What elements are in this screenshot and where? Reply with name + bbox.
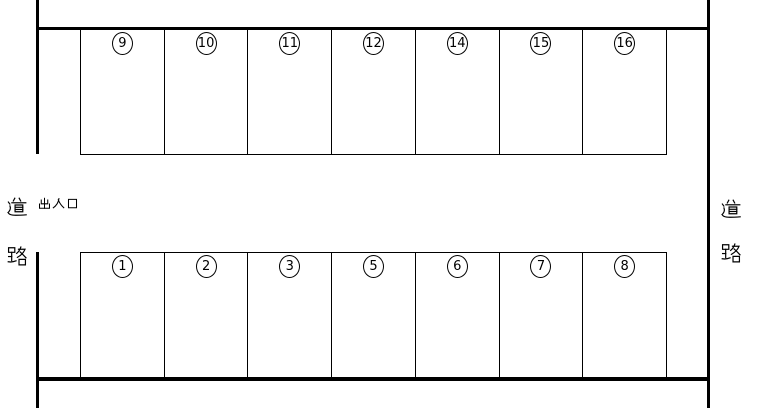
parking-space-11: 11 xyxy=(248,30,332,154)
space-number-badge: 15 xyxy=(530,32,551,55)
space-number-badge: 2 xyxy=(196,255,217,278)
parking-space-15: 15 xyxy=(500,30,584,154)
space-number-badge: 5 xyxy=(363,255,384,278)
bottom-road-boundary-line xyxy=(36,377,710,381)
kanji-iri-glyph xyxy=(52,197,65,210)
space-number-badge: 16 xyxy=(614,32,635,55)
space-number-badge: 7 xyxy=(530,255,551,278)
parking-space-9: 9 xyxy=(81,30,165,154)
parking-row-bottom: 1 2 3 5 6 7 8 xyxy=(80,252,667,377)
space-number-badge: 9 xyxy=(112,32,133,55)
space-number: 15 xyxy=(533,37,550,50)
parking-space-12: 12 xyxy=(332,30,416,154)
space-number: 9 xyxy=(118,37,126,50)
space-number: 1 xyxy=(118,260,126,273)
road-label-left: 道路 xyxy=(6,196,28,267)
parking-space-14: 14 xyxy=(416,30,500,154)
space-number: 3 xyxy=(286,260,294,273)
parking-space-7: 7 xyxy=(500,253,584,377)
kanji-ro-glyph xyxy=(720,242,742,264)
space-number: 12 xyxy=(365,37,382,50)
space-number-badge: 3 xyxy=(279,255,300,278)
space-number-badge: 10 xyxy=(196,32,217,55)
right-road-boundary-line xyxy=(707,0,710,408)
kanji-michi-glyph xyxy=(720,198,742,220)
parking-space-1: 1 xyxy=(81,253,165,377)
space-number: 2 xyxy=(202,260,210,273)
space-number: 16 xyxy=(616,37,633,50)
left-road-boundary-line-lower xyxy=(36,252,39,408)
entrance-label: 出入口 xyxy=(38,197,79,210)
space-number-badge: 11 xyxy=(279,32,300,55)
left-road-boundary-line-upper xyxy=(36,0,39,154)
parking-space-10: 10 xyxy=(165,30,249,154)
kanji-ro-glyph xyxy=(6,245,28,267)
kanji-kuchi-glyph xyxy=(66,197,79,210)
space-number: 5 xyxy=(369,260,377,273)
space-number: 8 xyxy=(621,260,629,273)
space-number-badge: 1 xyxy=(112,255,133,278)
space-number: 11 xyxy=(282,37,299,50)
space-number: 10 xyxy=(198,37,215,50)
space-number-badge: 12 xyxy=(363,32,384,55)
space-number: 6 xyxy=(453,260,461,273)
space-number-badge: 6 xyxy=(447,255,468,278)
space-number-badge: 14 xyxy=(447,32,468,55)
parking-space-16: 16 xyxy=(583,30,666,154)
parking-space-3: 3 xyxy=(248,253,332,377)
parking-space-5: 5 xyxy=(332,253,416,377)
kanji-michi-glyph xyxy=(6,196,28,218)
space-number: 14 xyxy=(449,37,466,50)
parking-space-2: 2 xyxy=(165,253,249,377)
road-label-right: 道路 xyxy=(720,198,742,264)
parking-space-8: 8 xyxy=(583,253,666,377)
parking-space-6: 6 xyxy=(416,253,500,377)
parking-row-top: 9 10 11 12 14 15 16 xyxy=(80,30,667,155)
kanji-de-glyph xyxy=(38,197,51,210)
space-number-badge: 8 xyxy=(614,255,635,278)
parking-lot-diagram: 9 10 11 12 14 15 16 1 2 3 5 xyxy=(0,0,759,408)
space-number: 7 xyxy=(537,260,545,273)
